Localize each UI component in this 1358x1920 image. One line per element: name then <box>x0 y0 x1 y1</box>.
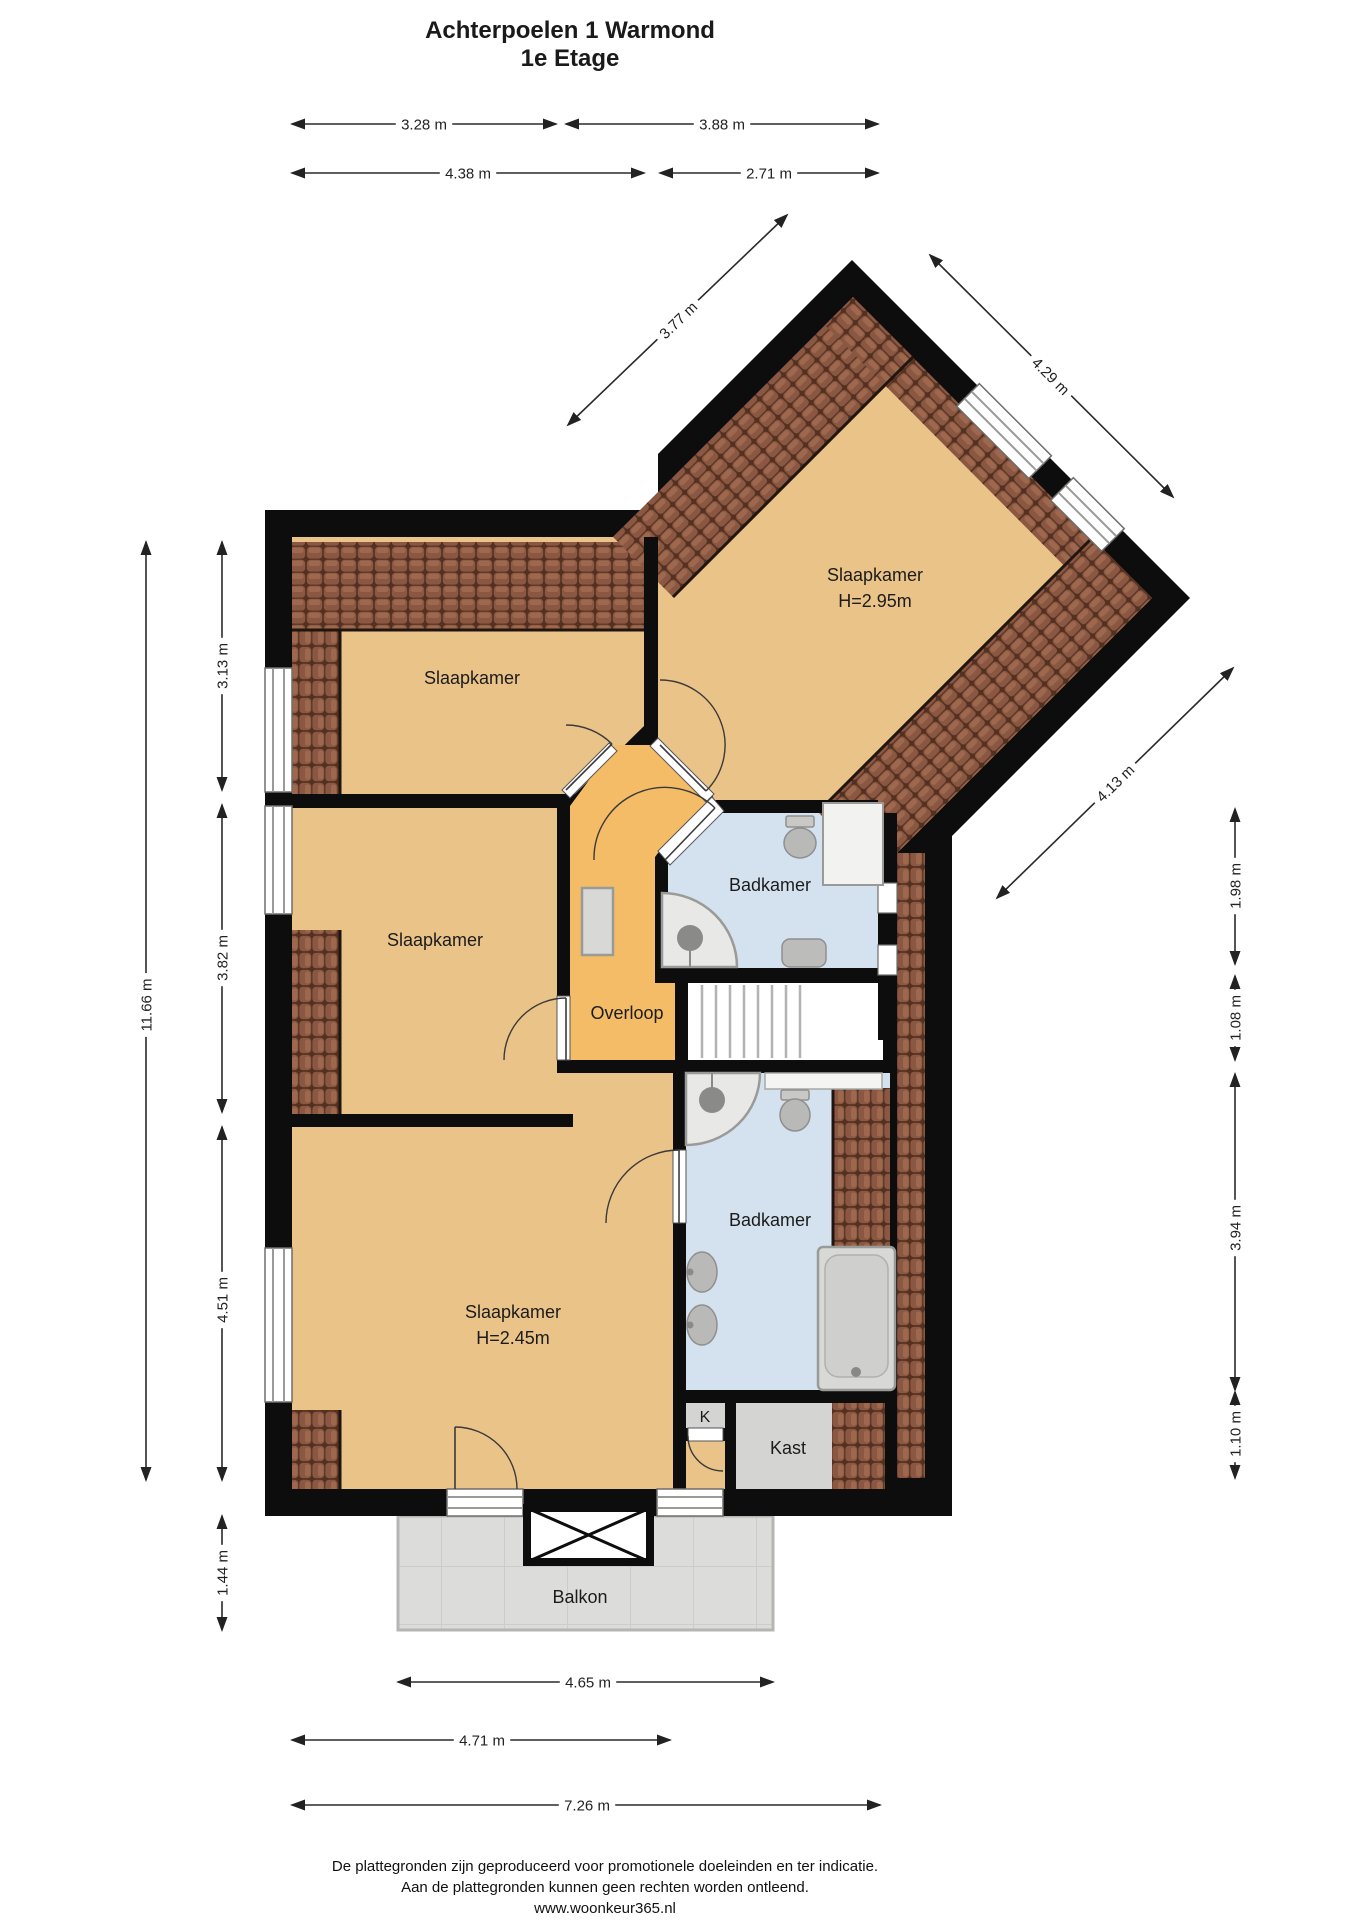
floorplan-canvas: Achterpoelen 1 Warmond 1e Etage <box>0 0 1358 1920</box>
wall-kast-right <box>885 1403 897 1489</box>
title-floor: 1e Etage <box>521 45 620 72</box>
radiator <box>582 888 613 955</box>
dimension-11.66m: 11.66 m <box>137 542 156 1480</box>
label-badkamer-lower: Badkamer <box>729 1210 811 1230</box>
title-address: Achterpoelen 1 Warmond <box>425 17 715 44</box>
footer-disclaimer-2: Aan de plattegronden kunnen geen rechten… <box>401 1879 809 1896</box>
dimension-label: 4.65 m <box>565 1675 611 1692</box>
balcony-hatch-box <box>527 1508 650 1562</box>
dimension-label: 3.88 m <box>699 117 745 134</box>
dimension-label: 11.66 m <box>139 978 156 1031</box>
dimension-label: 3.28 m <box>401 117 447 134</box>
dimension-1.98m: 1.98 m <box>1226 809 1245 964</box>
label-slaapkamer-wing-height: H=2.95m <box>838 591 912 611</box>
dimension-4.51m: 4.51 m <box>213 1127 232 1480</box>
wall-k-kast-divider <box>725 1403 736 1489</box>
wall-divider-1 <box>292 794 570 808</box>
sink-upper <box>782 939 826 967</box>
label-badkamer-upper: Badkamer <box>729 875 811 895</box>
dimension-3.13m: 3.13 m <box>213 542 232 790</box>
roof-strip-left-1 <box>292 630 340 794</box>
dimension-4.65m: 4.65 m <box>398 1673 773 1692</box>
cabinet-upper-bath <box>823 803 883 885</box>
toilet-lower <box>780 1090 810 1131</box>
dimension-label: 1.10 m <box>1228 1411 1245 1457</box>
label-slaapkamer-wing: Slaapkamer <box>827 565 923 585</box>
window-bath-right-2 <box>878 945 897 975</box>
footer-disclaimer-1: De plattegronden zijn geproduceerd voor … <box>332 1858 878 1875</box>
wall-bath-upper-bottom <box>655 968 883 983</box>
dimension-2.71m: 2.71 m <box>660 164 878 183</box>
page-title: Achterpoelen 1 Warmond 1e Etage <box>425 17 715 72</box>
dimension-label: 7.26 m <box>564 1798 610 1815</box>
dimension-label: 1.98 m <box>1228 863 1245 909</box>
sink-lower-1 <box>687 1252 718 1292</box>
room-bottom-nook <box>686 1441 725 1489</box>
dimension-label: 2.71 m <box>746 166 792 183</box>
roof-strip-outer-right <box>897 853 925 1478</box>
window-left-2 <box>265 806 292 914</box>
sink-lower-2 <box>687 1305 718 1345</box>
bathtub <box>818 1247 895 1390</box>
dimension-1.10m: 1.10 m <box>1226 1392 1245 1478</box>
room-slaapkamer-bottom <box>292 1073 673 1489</box>
dimension-label: 3.13 m <box>215 643 232 689</box>
label-slaapkamer-bottom: Slaapkamer <box>465 1302 561 1322</box>
label-overloop: Overloop <box>590 1003 663 1023</box>
dimension-3.94m: 3.94 m <box>1226 1074 1245 1390</box>
window-left-3 <box>265 1248 292 1402</box>
dimension-label: 3.94 m <box>1228 1205 1245 1251</box>
label-balkon: Balkon <box>552 1587 607 1607</box>
footer-website: www.woonkeur365.nl <box>533 1900 676 1917</box>
label-slaapkamer-topleft: Slaapkamer <box>424 668 520 688</box>
wall-topleft-room-right <box>644 537 658 729</box>
dimension-3.82m: 3.82 m <box>213 805 232 1112</box>
label-slaapkamer-bottom-height: H=2.45m <box>476 1328 550 1348</box>
dimension-4.38m: 4.38 m <box>292 164 644 183</box>
dimension-label: 4.51 m <box>215 1277 232 1323</box>
roof-strip-left-2 <box>292 930 340 1114</box>
dimension-3.88m: 3.88 m <box>566 115 878 134</box>
wall-stairs-left <box>675 983 688 1060</box>
dimension-label: 1.08 m <box>1228 995 1245 1041</box>
dimension-1.44m: 1.44 m <box>213 1516 232 1630</box>
window-bath-right-1 <box>878 883 897 913</box>
window-bottom-1 <box>447 1489 523 1516</box>
wall-stairs-bottom <box>557 1060 897 1073</box>
dimension-3.28m: 3.28 m <box>292 115 556 134</box>
wall-bath-lower-left <box>673 1073 686 1403</box>
label-kast: Kast <box>770 1438 806 1458</box>
wall-bath-lower-bottom <box>686 1390 897 1403</box>
dimension-label: 4.71 m <box>459 1733 505 1750</box>
dimension-label: 3.82 m <box>215 935 232 981</box>
label-slaapkamer-middle: Slaapkamer <box>387 930 483 950</box>
toilet-upper <box>784 816 816 858</box>
wall-divider-2 <box>292 1114 573 1127</box>
roof-strip-kast-right <box>832 1403 885 1489</box>
counter-lower-bath <box>765 1073 882 1089</box>
dimension-1.08m: 1.08 m <box>1226 976 1245 1060</box>
dimension-label: 1.44 m <box>215 1550 232 1596</box>
dimension-label: 4.13 m <box>1093 762 1138 806</box>
dimension-4.71m: 4.71 m <box>292 1731 670 1750</box>
window-left-1 <box>265 668 292 792</box>
floorplan-page: Achterpoelen 1 Warmond 1e Etage <box>0 0 1358 1920</box>
roof-band-top <box>292 542 644 630</box>
roof-strip-left-3 <box>292 1410 340 1489</box>
label-k-closet: K <box>700 1409 711 1426</box>
dimension-7.26m: 7.26 m <box>292 1796 880 1815</box>
window-bottom-2 <box>657 1489 723 1516</box>
dimension-label: 4.38 m <box>445 166 491 183</box>
dimension-label: 4.29 m <box>1028 354 1072 398</box>
dimension-label: 3.77 m <box>656 299 701 343</box>
footer: De plattegronden zijn geproduceerd voor … <box>332 1858 878 1917</box>
